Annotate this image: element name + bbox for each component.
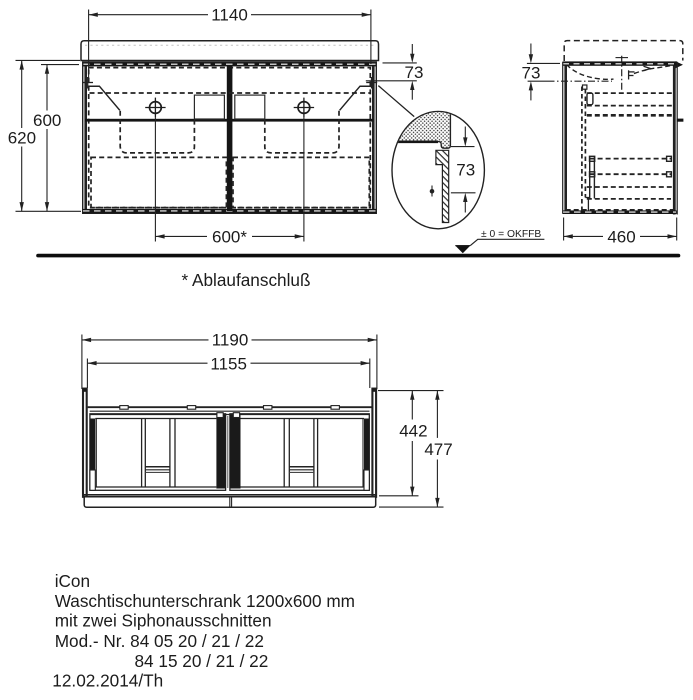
svg-text:mit zwei Siphonausschnitten: mit zwei Siphonausschnitten [55,611,272,631]
svg-text:477: 477 [424,440,452,459]
svg-text:* Ablaufanschluß: * Ablaufanschluß [182,270,311,290]
svg-text:620: 620 [8,128,36,147]
svg-text:442: 442 [399,421,427,440]
svg-text:73: 73 [522,63,541,82]
svg-text:12.02.2014/Th: 12.02.2014/Th [52,671,163,691]
svg-text:1155: 1155 [210,355,247,374]
svg-text:Mod.- Nr. 84 05 20 / 21 / 22: Mod.- Nr. 84 05 20 / 21 / 22 [55,631,264,651]
svg-text:600*: 600* [212,227,247,246]
svg-text:iCon: iCon [55,571,90,591]
svg-text:84 15 20 / 21 / 22: 84 15 20 / 21 / 22 [135,651,269,671]
svg-text:600: 600 [33,111,61,130]
svg-text:73: 73 [405,63,424,82]
svg-text:1190: 1190 [212,330,249,349]
svg-text:1140: 1140 [211,6,248,25]
svg-text:73: 73 [456,161,475,180]
svg-text:Waschtischunterschrank 1200x60: Waschtischunterschrank 1200x600 mm [55,591,355,611]
svg-text:460: 460 [607,227,635,246]
svg-text:± 0 = OKFFB: ± 0 = OKFFB [481,229,541,240]
